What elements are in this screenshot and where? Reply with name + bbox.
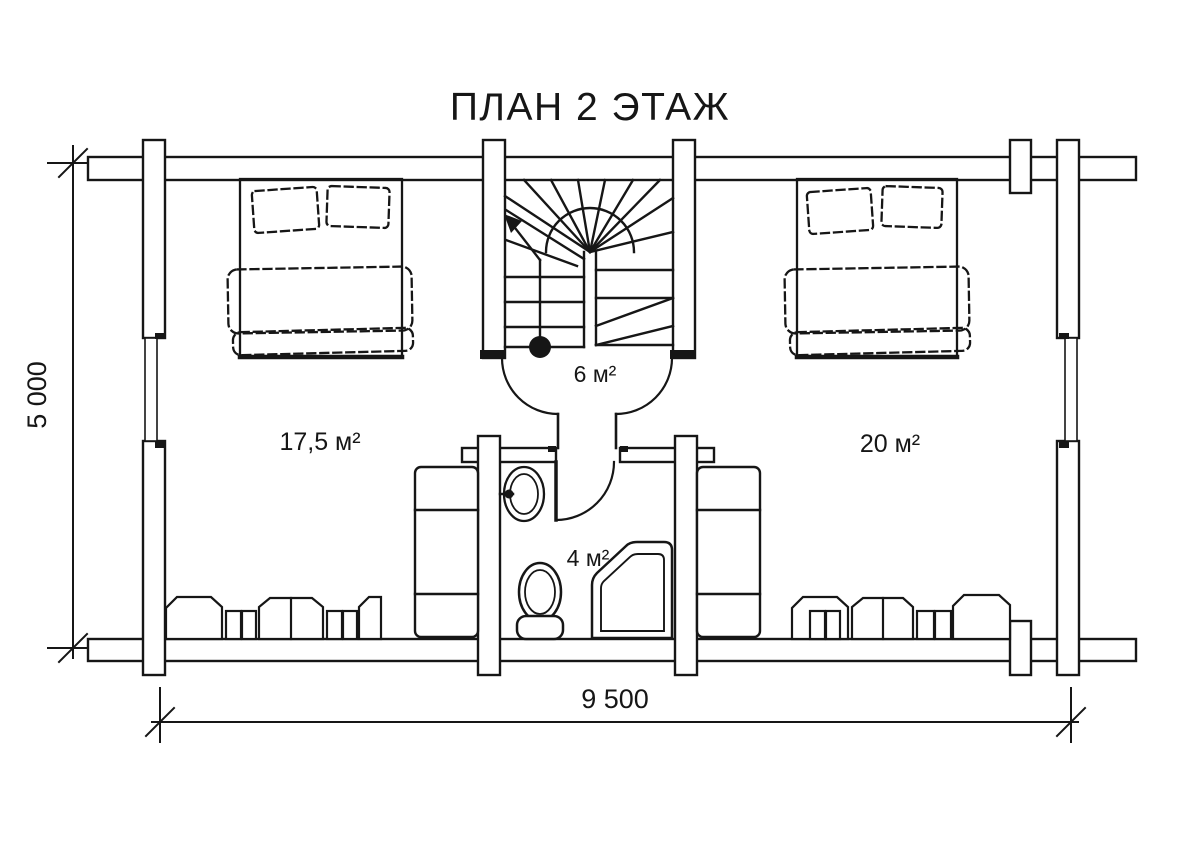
bathroom-door-arc — [556, 462, 614, 520]
pillow — [326, 186, 389, 228]
wall-top — [88, 157, 1136, 180]
floor-plan-page: ПЛАН 2 ЭТАЖ 5 000 9 500 — [0, 0, 1200, 850]
floor-plan-drawing: ПЛАН 2 ЭТАЖ 5 000 9 500 — [0, 0, 1200, 850]
door-arc-bedroom-left — [502, 358, 558, 414]
log-end-top-right — [1010, 140, 1031, 193]
plan-title: ПЛАН 2 ЭТАЖ — [450, 86, 730, 129]
pillow — [881, 186, 942, 228]
bathroom-area-label: 4 м² — [567, 545, 610, 571]
dimension-horizontal-label: 9 500 — [581, 684, 649, 714]
sink — [500, 467, 544, 521]
toilet — [517, 563, 563, 639]
wall-left-upper — [143, 140, 165, 338]
cabinets-left — [166, 597, 381, 639]
stair-post-right — [673, 140, 695, 358]
bathroom-wall-top-left — [462, 448, 556, 462]
pillow — [807, 188, 874, 234]
blanket — [227, 266, 412, 333]
wardrobe-left — [415, 467, 478, 637]
stair-post-left — [483, 140, 505, 358]
wall-right-upper — [1057, 140, 1079, 338]
bedroom-right-area-label: 20 м² — [860, 430, 920, 458]
hall-area-label: 6 м² — [574, 361, 617, 387]
cabinets-right — [792, 595, 1010, 639]
wall-left-lower — [143, 441, 165, 675]
blanket — [784, 266, 969, 333]
window-right — [1065, 338, 1077, 441]
stair-winders — [505, 180, 673, 252]
dimension-vertical-label: 5 000 — [22, 361, 52, 429]
log-end-bottom-right — [1010, 621, 1031, 675]
door-arc-bedroom-right — [616, 358, 672, 414]
toilet-cistern — [517, 616, 563, 639]
bed-left — [227, 179, 413, 357]
stair-direction-arrow — [504, 214, 522, 233]
bedroom-left-area-label: 17,5 м² — [279, 428, 360, 456]
dimension-horizontal: 9 500 — [146, 684, 1085, 742]
window-left — [145, 338, 157, 441]
wardrobe-right — [697, 467, 760, 637]
wall-bottom — [88, 639, 1136, 661]
wall-right-lower — [1057, 441, 1079, 675]
dimension-vertical: 5 000 — [22, 146, 120, 662]
sink-tap — [505, 490, 514, 499]
bed-right — [784, 179, 970, 357]
bathroom-post-left — [478, 436, 500, 675]
bathroom-post-right — [675, 436, 697, 675]
pillow — [252, 187, 320, 233]
bathroom-wall-top-right — [620, 448, 714, 462]
